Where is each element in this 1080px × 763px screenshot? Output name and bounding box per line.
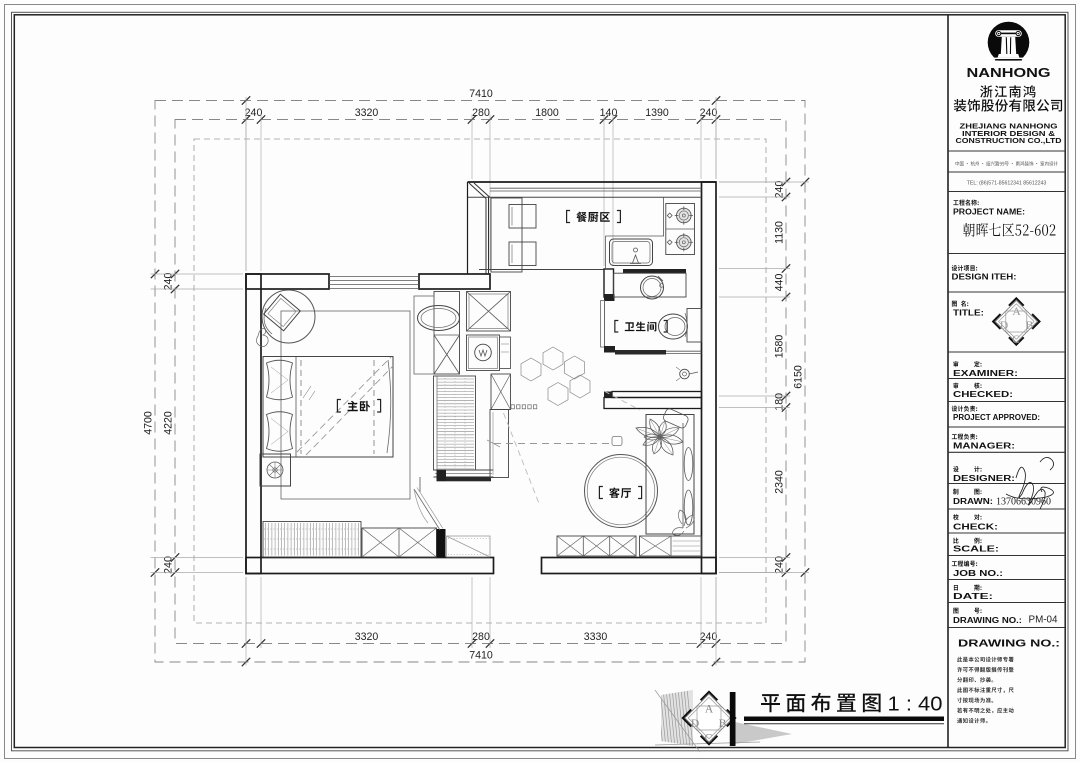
svg-text:D: D [1000, 320, 1008, 332]
svg-text:PROJECT APPROVED:: PROJECT APPROVED: [953, 413, 1040, 422]
svg-text:DATE:: DATE: [953, 592, 993, 601]
svg-text:1800: 1800 [535, 107, 559, 119]
svg-text:1130: 1130 [774, 221, 786, 244]
svg-text:JOB NO.:: JOB NO.: [953, 569, 1003, 578]
svg-text:TEL: (86)571-85612341 8561: TEL: (86)571-85612341 85612243 [967, 181, 1047, 187]
svg-text:240: 240 [245, 107, 263, 119]
svg-text:DRAWN:: DRAWN: [953, 497, 993, 506]
svg-text:EXAMINER:: EXAMINER: [953, 369, 1018, 378]
svg-text:C: C [705, 733, 713, 745]
svg-text:DESIGN ITEH:: DESIGN ITEH: [952, 273, 1017, 282]
svg-text:140: 140 [600, 107, 618, 119]
svg-text:3320: 3320 [355, 107, 379, 119]
svg-text:B: B [719, 718, 727, 730]
svg-text:TITLE:: TITLE: [953, 309, 984, 318]
svg-text:240: 240 [163, 273, 175, 291]
svg-text:3330: 3330 [584, 631, 608, 643]
svg-text:240: 240 [700, 107, 718, 119]
svg-text:1580: 1580 [774, 335, 786, 359]
svg-text:440: 440 [774, 274, 786, 292]
svg-text:6150: 6150 [793, 365, 805, 389]
svg-text:7410: 7410 [469, 650, 493, 662]
svg-text:A: A [1012, 306, 1021, 318]
svg-text:13706630960: 13706630960 [996, 497, 1051, 508]
svg-text:D: D [691, 718, 699, 730]
svg-text:DRAWING NO.:: DRAWING NO.: [958, 639, 1060, 650]
svg-text:280: 280 [472, 631, 490, 643]
svg-text:PM-04: PM-04 [1029, 615, 1059, 626]
svg-text:CONSTRUCTION CO.,LTD: CONSTRUCTION CO.,LTD [956, 136, 1062, 145]
svg-text:280: 280 [472, 107, 490, 119]
svg-text:DRAWING NO.:: DRAWING NO.: [953, 616, 1022, 625]
svg-text:CHECKED:: CHECKED: [953, 390, 1013, 399]
svg-text:3320: 3320 [355, 631, 379, 643]
svg-text:B: B [1026, 320, 1034, 332]
svg-text:240: 240 [700, 631, 718, 643]
svg-text:SCALE:: SCALE: [953, 545, 999, 554]
svg-text:A: A [705, 704, 714, 716]
svg-text:1390: 1390 [645, 107, 669, 119]
svg-text:PROJECT NAME:: PROJECT NAME: [953, 208, 1025, 217]
svg-text:4220: 4220 [163, 411, 175, 435]
svg-text:NANHONG: NANHONG [967, 65, 1051, 80]
svg-text:240: 240 [774, 181, 786, 199]
svg-text:4700: 4700 [143, 411, 155, 435]
svg-text:240: 240 [774, 556, 786, 574]
svg-text:180: 180 [774, 393, 786, 411]
svg-text:2340: 2340 [774, 470, 786, 494]
svg-text:7410: 7410 [469, 88, 493, 100]
svg-text:CHECK:: CHECK: [953, 522, 998, 531]
svg-text:DESIGNER:: DESIGNER: [953, 474, 1015, 483]
svg-text:1 : 40: 1 : 40 [888, 693, 943, 716]
svg-text:C: C [1012, 334, 1020, 346]
svg-text:240: 240 [163, 556, 175, 574]
svg-text:MANAGER:: MANAGER: [953, 441, 1015, 450]
